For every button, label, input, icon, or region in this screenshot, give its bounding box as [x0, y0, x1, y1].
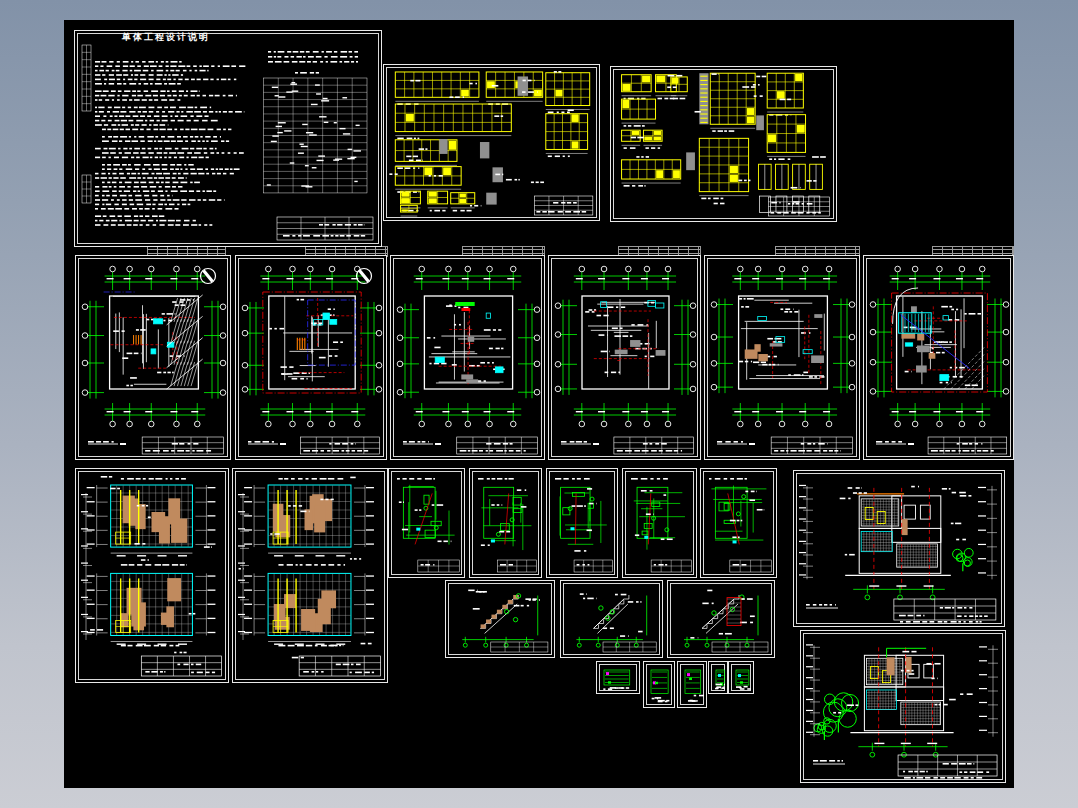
sheet-elevation-left-1[interactable]: [75, 468, 229, 683]
sheet-stair-detail-1[interactable]: [445, 580, 555, 658]
sheet-node-detail-2[interactable]: [643, 661, 675, 708]
sheet-node-detail-4-drawing: [713, 666, 725, 691]
sheet-node-detail-2-drawing: [648, 666, 672, 705]
sheet-door-window-schedule-1[interactable]: [383, 64, 600, 221]
sheet-detail-4[interactable]: [622, 468, 697, 578]
sheet-floor-plan-3-drawing: [395, 260, 542, 457]
sheet-elevation-right-1-drawing: [798, 475, 1002, 624]
sheet-node-detail-5[interactable]: [728, 661, 754, 694]
sheet-node-detail-4[interactable]: [708, 661, 728, 694]
sheet-node-detail-5-drawing: [733, 666, 751, 691]
sheet-elevation-left-2-drawing: [237, 473, 385, 680]
sheet-stair-detail-2[interactable]: [560, 580, 663, 658]
sheet-elevation-left-2[interactable]: [232, 468, 388, 683]
sheet-detail-4-drawing: [627, 473, 694, 575]
sheet-elevation-left-1-drawing: [80, 473, 226, 680]
sheet-node-detail-3-drawing: [682, 666, 704, 705]
sheet-detail-2-drawing: [474, 473, 539, 575]
sheet-detail-5-drawing: [705, 473, 774, 575]
sheet-elevation-right-2[interactable]: [800, 630, 1006, 783]
sheet-design-notes-drawing: [79, 35, 379, 244]
sheet-stair-detail-2-drawing: [565, 585, 660, 655]
sheet-floor-plan-1[interactable]: [75, 255, 231, 460]
sheet-floor-plan-4[interactable]: [548, 255, 701, 460]
sheet-elevation-right-2-drawing: [805, 635, 1003, 780]
sheet-floor-plan-5-drawing: [709, 260, 857, 457]
sheet-detail-2[interactable]: [469, 468, 542, 578]
sheet-floor-plan-1-drawing: [80, 260, 228, 457]
sheet-door-window-schedule-2-drawing: [615, 71, 834, 219]
sheet-floor-plan-5[interactable]: [704, 255, 860, 460]
sheet-detail-3[interactable]: [546, 468, 618, 578]
sheet-floor-plan-4-drawing: [553, 260, 698, 457]
sheet-detail-3-drawing: [551, 473, 615, 575]
sheet-detail-1[interactable]: [388, 468, 465, 578]
sheet-stair-detail-1-drawing: [450, 585, 552, 655]
sheet-roof-plan[interactable]: [863, 255, 1014, 460]
sheet-floor-plan-2-drawing: [240, 260, 384, 457]
sheet-node-detail-1[interactable]: [596, 661, 640, 694]
sheet-floor-plan-3[interactable]: [390, 255, 545, 460]
sheet-elevation-right-1[interactable]: [793, 470, 1005, 627]
sheet-design-notes[interactable]: [74, 30, 382, 247]
notes-sheet-title: 单体工程设计说明: [122, 31, 210, 44]
sheet-floor-plan-2[interactable]: [235, 255, 387, 460]
sheet-door-window-schedule-2[interactable]: [610, 66, 837, 222]
sheet-roof-plan-drawing: [868, 260, 1011, 457]
sheet-stair-detail-3-drawing: [672, 585, 772, 655]
sheet-node-detail-3[interactable]: [677, 661, 707, 708]
sheet-detail-5[interactable]: [700, 468, 777, 578]
sheet-door-window-schedule-1-drawing: [388, 69, 597, 218]
sheet-node-detail-1-drawing: [601, 666, 637, 691]
sheet-detail-1-drawing: [393, 473, 462, 575]
sheet-stair-detail-3[interactable]: [667, 580, 775, 658]
model-space-canvas[interactable]: 单体工程设计说明: [64, 20, 1014, 788]
